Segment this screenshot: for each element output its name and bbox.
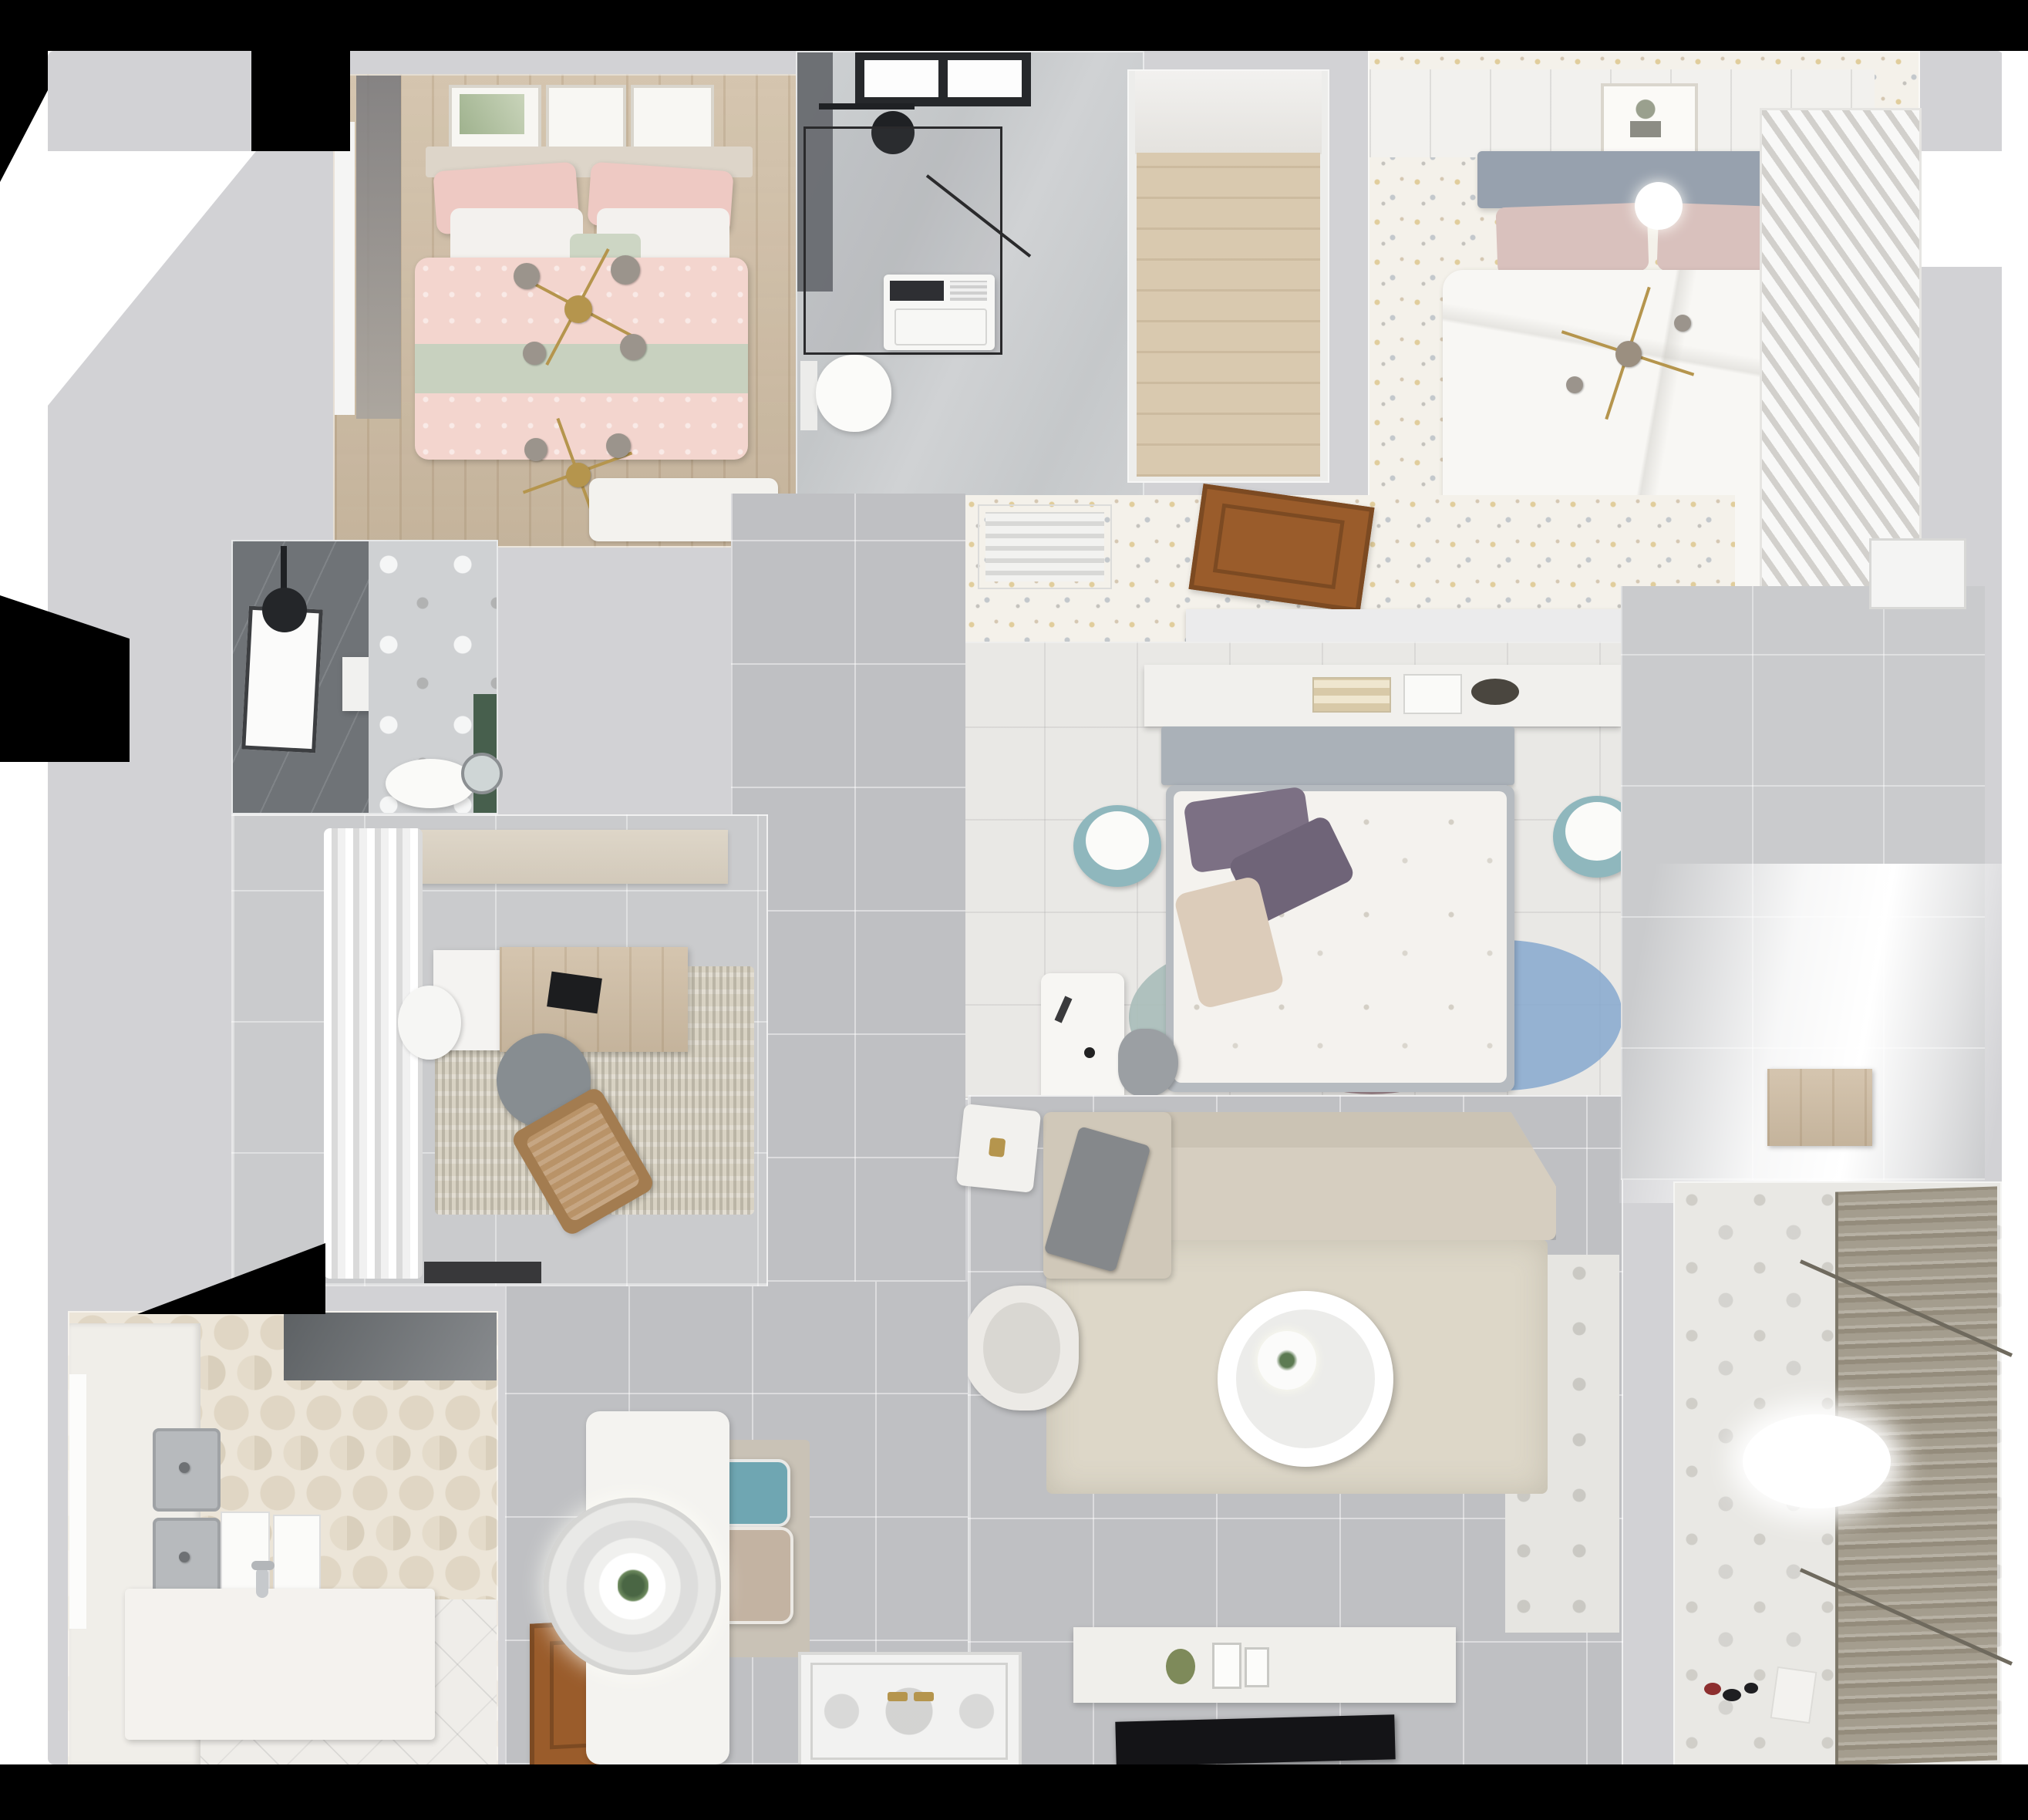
- bowl-dark: [1471, 679, 1519, 705]
- sink-basin: [153, 1428, 221, 1512]
- room-balcony: [1673, 1181, 2002, 1768]
- bed-frame: [1166, 785, 1514, 1092]
- book-white: [1403, 674, 1462, 714]
- window-left: [335, 122, 355, 415]
- desk-dot: [1084, 1047, 1095, 1058]
- wall-frame-2: [546, 85, 626, 151]
- light-swath: [1619, 864, 2005, 1203]
- toilet-tank: [800, 361, 817, 430]
- round-coffee-table: [1218, 1291, 1393, 1467]
- void-bottom-band: [0, 1764, 2028, 1820]
- armchair-seat: [983, 1303, 1060, 1394]
- wood-shelf: [1767, 1069, 1872, 1146]
- washer-controls: [890, 281, 944, 301]
- ceiling-light-icon: [1743, 1414, 1891, 1508]
- tv-flat: [1115, 1714, 1395, 1766]
- toy-car-icon: [1704, 1683, 1721, 1695]
- sectional-sofa: [1104, 1112, 1556, 1240]
- desk-chair: [398, 986, 461, 1060]
- armchair: [962, 1286, 1079, 1410]
- faucet-icon: [256, 1567, 268, 1598]
- gold-decor: [989, 1137, 1006, 1158]
- door-mat: [424, 1262, 541, 1283]
- void-left-sliver: [0, 51, 48, 182]
- round-mirror-icon: [461, 753, 503, 794]
- chandelier-gold-icon: [1558, 284, 1697, 423]
- toy-car-icon: [1744, 1683, 1758, 1694]
- bedside-lamp-icon: [1635, 182, 1683, 230]
- curtain-icon: [356, 76, 401, 419]
- tv-console: [1073, 1627, 1456, 1703]
- door-small: [1869, 538, 1966, 609]
- wall-shelf: [1144, 665, 1621, 726]
- skylight-pane: [864, 60, 938, 97]
- room-bedroom-center: [950, 642, 1624, 1100]
- wall-frame-leaf: [449, 85, 541, 151]
- room-living: [968, 1095, 1623, 1768]
- outside-right-strip: [2002, 51, 2028, 1764]
- island-counter: [125, 1589, 435, 1740]
- wood-door-leaf: [1188, 484, 1374, 613]
- skylight-pane: [948, 60, 1022, 97]
- void-top-left-block: [251, 51, 350, 151]
- mat-inner-border: [810, 1663, 1008, 1760]
- room-kitchen: [68, 1311, 498, 1768]
- skylight-icon: [855, 52, 1031, 106]
- books-stack: [1312, 677, 1391, 713]
- double-sink-icon: [153, 1428, 214, 1596]
- pillow-blush-left: [1496, 203, 1649, 276]
- pendant-lamp-icon: [544, 1498, 721, 1675]
- stool-cushion: [1565, 802, 1629, 861]
- room-bedroom-pink: [333, 74, 799, 548]
- desk-chair: [1118, 1029, 1178, 1097]
- side-table: [956, 1104, 1042, 1193]
- door-handle-icon: [888, 1692, 908, 1701]
- desk-items: [1055, 996, 1073, 1023]
- toilet-bowl: [816, 355, 891, 432]
- washing-machine-icon: [884, 275, 995, 350]
- leaf-art: [460, 94, 524, 134]
- photo-frame-icon: [1212, 1643, 1241, 1689]
- ceiling-face: [1135, 71, 1322, 154]
- hallway-confetti: [964, 495, 1735, 642]
- green-vase-icon: [1166, 1649, 1195, 1684]
- sofa-back-cushions: [1104, 1112, 1556, 1148]
- washer-panel-lines: [950, 281, 987, 301]
- chandelier-gold-icon: [512, 241, 643, 372]
- floorplan-canvas: [0, 0, 2028, 1820]
- sheer-curtains: [324, 828, 423, 1279]
- shower-head-icon: [262, 588, 307, 632]
- door-handle-icon: [914, 1692, 934, 1701]
- faucet-icon: [251, 1561, 275, 1570]
- picture-frame: [1601, 83, 1698, 159]
- shower-head-icon: [819, 103, 915, 110]
- bag-icon: [1770, 1667, 1817, 1724]
- stool-cushion: [1086, 811, 1149, 870]
- room-walk-in-closet: [1127, 69, 1329, 483]
- toilet-icon: [800, 355, 891, 436]
- stool-teal-left: [1073, 805, 1161, 887]
- window: [69, 1374, 86, 1629]
- plant-icon: [1276, 1350, 1298, 1371]
- range-hood-icon: [284, 1313, 497, 1380]
- ac-vent-icon: [978, 504, 1112, 589]
- laptop-icon: [547, 972, 602, 1014]
- room-bathroom-left: [231, 540, 498, 814]
- plant-icon: [618, 1569, 648, 1603]
- photo-frame-icon: [1245, 1647, 1269, 1687]
- toy-car-icon: [1723, 1689, 1741, 1701]
- entry-door-mat: [798, 1652, 1022, 1772]
- wall-frame-3: [631, 85, 714, 151]
- headboard: [1161, 726, 1514, 785]
- void-top-band: [0, 0, 2028, 51]
- outside-top-right: [1919, 151, 2005, 267]
- room-bathroom-top: [796, 51, 1144, 498]
- door-panel: [1213, 504, 1345, 589]
- washer-door: [894, 308, 987, 345]
- wood-floor: [1137, 153, 1320, 477]
- room-study: [231, 814, 768, 1286]
- frame-art: [1630, 97, 1661, 137]
